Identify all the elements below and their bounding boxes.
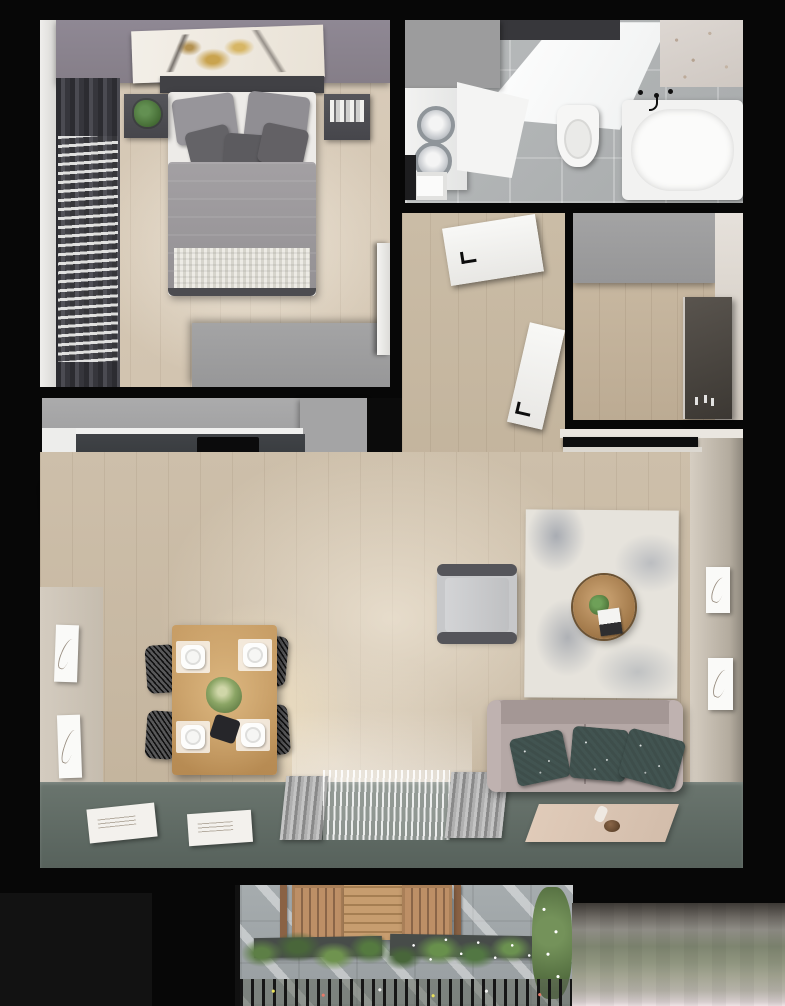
toilet: [557, 105, 599, 167]
coffee-table-magazine: [597, 608, 622, 637]
room-bathroom: [405, 20, 743, 203]
bedroom-door: [377, 243, 390, 355]
washer-door-icon: [417, 106, 455, 144]
tub-fixture-dot: [668, 89, 673, 94]
bed-throw-blanket: [174, 248, 310, 290]
entry-door-open: [507, 322, 565, 429]
sheer-curtain: [323, 770, 450, 840]
room-bedroom: [40, 20, 390, 387]
wall-art: [131, 25, 325, 84]
bathroom-door-open: [442, 214, 544, 286]
plate: [243, 643, 267, 667]
perfume-bottle-icon: [695, 397, 698, 405]
floor-book-tray: [86, 803, 157, 844]
plate: [181, 725, 205, 749]
floorplan-canvas: [0, 0, 785, 1006]
sofa-pillow: [509, 729, 572, 787]
bathroom-dark-wall: [500, 20, 620, 40]
bed-headboard: [160, 76, 324, 93]
plate: [241, 723, 265, 747]
armchair-back: [437, 564, 517, 576]
exterior-shadow-block: [0, 893, 152, 1006]
sofa-armrest-left: [487, 700, 501, 792]
sofa-back: [497, 700, 673, 724]
wall-frame-right-top: [706, 567, 730, 613]
perfume-bottle-icon: [704, 395, 707, 403]
perfume-bottle-icon: [711, 398, 714, 406]
plate: [181, 645, 205, 669]
dining-table: [172, 625, 277, 775]
entry-mirror: [683, 297, 732, 419]
entry-wardrobe: [573, 213, 715, 283]
floor-book-tray: [187, 810, 253, 846]
window-blinds: [58, 136, 118, 362]
wall-frame-left-bottom: [57, 715, 82, 779]
media-console-edge: [563, 447, 702, 452]
exterior-ground: [572, 903, 785, 1006]
armchair-front-rail: [437, 632, 517, 644]
sofa: [487, 700, 683, 792]
balcony: [235, 885, 573, 1006]
armchair: [437, 568, 517, 640]
curtain-panel-left: [280, 776, 329, 840]
bathroom-dark-item: [405, 155, 416, 200]
armchair-seat: [445, 578, 509, 632]
bathroom-door-frame: [413, 172, 447, 200]
balcony-door-light: [292, 692, 472, 782]
bathroom-cabinet-top: [405, 20, 500, 88]
wall-frame-right-bottom: [708, 658, 733, 710]
window-sill: [40, 20, 56, 387]
wall-frame-left-top: [54, 625, 79, 683]
bed-frame-foot: [168, 288, 316, 296]
table-centerpiece-plant: [206, 677, 242, 713]
nightstand-books: [330, 100, 364, 122]
media-console: [563, 437, 698, 447]
marble-accent-tiles: [660, 20, 743, 87]
door-handle-icon: [515, 402, 532, 417]
bathtub: [622, 100, 743, 200]
double-bed: [168, 92, 316, 296]
door-handle-icon: [460, 250, 477, 264]
coffee-table: [573, 575, 635, 639]
bedroom-wardrobe: [192, 323, 390, 387]
tub-fixture-dot: [638, 90, 643, 95]
pet-bowl: [604, 820, 620, 832]
room-hallway: [402, 213, 565, 470]
balcony-railing: [240, 979, 573, 1006]
nightstand-plant: [134, 100, 161, 127]
